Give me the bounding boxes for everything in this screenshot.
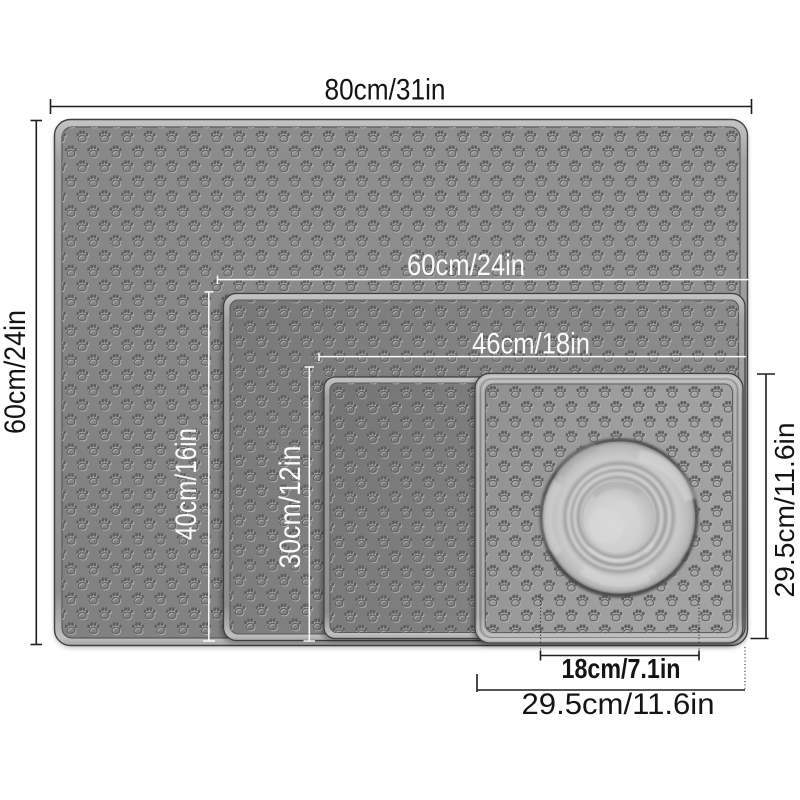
svg-text:40cm/16in: 40cm/16in <box>170 428 203 540</box>
svg-text:29.5cm/11.6in: 29.5cm/11.6in <box>769 423 800 598</box>
svg-text:60cm/24in: 60cm/24in <box>407 249 525 282</box>
svg-text:18cm/7.1in: 18cm/7.1in <box>562 653 681 684</box>
svg-text:60cm/24in: 60cm/24in <box>0 310 32 434</box>
svg-text:46cm/18in: 46cm/18in <box>472 328 590 361</box>
svg-text:30cm/12in: 30cm/12in <box>274 446 307 569</box>
svg-text:29.5cm/11.6in: 29.5cm/11.6in <box>522 688 715 721</box>
svg-text:80cm/31in: 80cm/31in <box>325 74 446 107</box>
